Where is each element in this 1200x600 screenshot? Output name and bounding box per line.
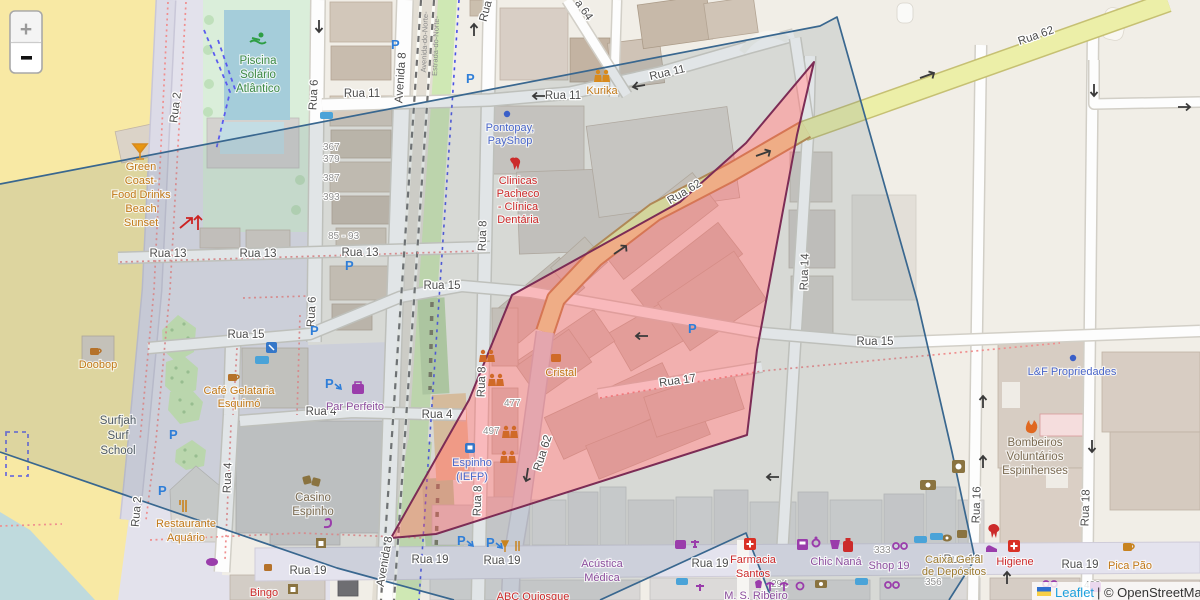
svg-text:Pica Pão: Pica Pão bbox=[1108, 560, 1152, 572]
svg-text:Espinho: Espinho bbox=[452, 457, 492, 469]
svg-text:P: P bbox=[688, 321, 697, 336]
svg-text:393: 393 bbox=[323, 192, 340, 203]
svg-text:Food Drinks: Food Drinks bbox=[111, 189, 171, 201]
svg-text:P: P bbox=[457, 533, 466, 548]
svg-text:| © OpenStreetMap: | © OpenStreetMap bbox=[1097, 585, 1200, 600]
svg-text:Rua 8: Rua 8 bbox=[476, 220, 489, 251]
svg-text:Rua 8: Rua 8 bbox=[475, 366, 488, 397]
svg-text:Rua 19: Rua 19 bbox=[691, 558, 728, 570]
svg-text:Rua 6: Rua 6 bbox=[307, 79, 321, 110]
svg-text:Rua 19: Rua 19 bbox=[1061, 559, 1098, 571]
svg-text:- Clínica: - Clínica bbox=[498, 201, 539, 213]
svg-text:Esquimó: Esquimó bbox=[218, 398, 261, 410]
svg-text:Rua 14: Rua 14 bbox=[798, 253, 811, 291]
svg-text:Médica: Médica bbox=[584, 572, 620, 584]
svg-text:Casino: Casino bbox=[295, 492, 331, 504]
svg-text:Surf: Surf bbox=[107, 430, 129, 442]
svg-text:497: 497 bbox=[483, 426, 500, 437]
svg-text:Rua 15: Rua 15 bbox=[856, 336, 893, 348]
svg-text:Kurika: Kurika bbox=[586, 85, 618, 97]
svg-text:P: P bbox=[466, 71, 475, 86]
svg-text:P: P bbox=[158, 483, 167, 498]
svg-text:Farmacia: Farmacia bbox=[730, 554, 777, 566]
svg-text:Rua 16: Rua 16 bbox=[970, 486, 983, 523]
svg-text:L&F Propriedades: L&F Propriedades bbox=[1028, 366, 1117, 378]
svg-text:Rua 13: Rua 13 bbox=[239, 248, 276, 260]
svg-text:Rua 15: Rua 15 bbox=[423, 280, 460, 292]
svg-text:Par Perfeito: Par Perfeito bbox=[326, 401, 384, 413]
svg-text:Rua 13: Rua 13 bbox=[149, 248, 186, 260]
svg-text:356: 356 bbox=[925, 577, 942, 588]
svg-text:Bombeiros: Bombeiros bbox=[1008, 437, 1063, 449]
svg-text:Rua 4: Rua 4 bbox=[221, 462, 234, 494]
svg-text:Rua 11: Rua 11 bbox=[545, 90, 581, 102]
svg-text:Rua 18: Rua 18 bbox=[1079, 489, 1092, 526]
svg-text:Rua 4: Rua 4 bbox=[422, 409, 453, 421]
svg-text:Santos: Santos bbox=[736, 568, 771, 580]
svg-text:(IEFP): (IEFP) bbox=[456, 471, 488, 483]
svg-text:333: 333 bbox=[874, 545, 891, 556]
svg-text:P: P bbox=[169, 427, 178, 442]
svg-text:P: P bbox=[325, 376, 334, 391]
svg-text:Sunset: Sunset bbox=[124, 217, 158, 229]
svg-text:Atlântico: Atlântico bbox=[236, 83, 280, 95]
svg-text:Espinho: Espinho bbox=[292, 506, 334, 518]
svg-text:Chic Naná: Chic Naná bbox=[810, 556, 862, 568]
svg-text:Aquário: Aquário bbox=[167, 532, 205, 544]
svg-text:ABC Quiosque: ABC Quiosque bbox=[497, 591, 570, 600]
svg-text:Dentária: Dentária bbox=[497, 214, 539, 226]
svg-text:387: 387 bbox=[323, 173, 340, 184]
svg-text:Pacheco: Pacheco bbox=[497, 188, 540, 200]
svg-text:P: P bbox=[310, 323, 319, 338]
svg-text:Higiene: Higiene bbox=[996, 556, 1033, 568]
svg-text:M. S. Ribeiro: M. S. Ribeiro bbox=[724, 590, 788, 600]
svg-text:+: + bbox=[20, 18, 32, 41]
svg-text:Restaurante: Restaurante bbox=[156, 518, 216, 530]
svg-text:Voluntários: Voluntários bbox=[1007, 451, 1064, 463]
svg-text:Espinhenses: Espinhenses bbox=[1002, 465, 1068, 477]
svg-text:85 - 93: 85 - 93 bbox=[328, 231, 360, 242]
svg-text:Leaflet: Leaflet bbox=[1055, 585, 1094, 600]
svg-text:P: P bbox=[345, 258, 354, 273]
svg-text:Rua 19: Rua 19 bbox=[483, 555, 520, 567]
svg-text:Acústica: Acústica bbox=[581, 558, 623, 570]
svg-text:Bingo: Bingo bbox=[250, 587, 278, 599]
svg-text:Piscina: Piscina bbox=[239, 55, 277, 67]
svg-text:Caixa Geral: Caixa Geral bbox=[925, 554, 983, 566]
svg-text:Rua 8: Rua 8 bbox=[471, 485, 484, 516]
svg-text:Clinicas: Clinicas bbox=[499, 175, 538, 187]
svg-text:Cristal: Cristal bbox=[545, 367, 576, 379]
svg-text:Rua 19: Rua 19 bbox=[289, 565, 326, 577]
svg-text:379: 379 bbox=[323, 154, 340, 165]
svg-text:Rua 11: Rua 11 bbox=[344, 88, 380, 100]
svg-text:Doobop: Doobop bbox=[79, 359, 118, 371]
svg-text:Café Gelataria: Café Gelataria bbox=[204, 385, 276, 397]
svg-text:Surfjah: Surfjah bbox=[100, 415, 136, 427]
svg-text:P: P bbox=[391, 37, 400, 52]
svg-text:School: School bbox=[100, 445, 135, 457]
svg-text:Coast-: Coast- bbox=[125, 175, 158, 187]
svg-text:Beach: Beach bbox=[125, 203, 156, 215]
svg-text:Green: Green bbox=[126, 161, 157, 173]
svg-text:Solário: Solário bbox=[240, 69, 276, 81]
svg-text:PayShop: PayShop bbox=[488, 135, 533, 147]
svg-text:Shop 19: Shop 19 bbox=[869, 560, 910, 572]
svg-text:Pontopay,: Pontopay, bbox=[486, 122, 535, 134]
svg-text:Rua 19: Rua 19 bbox=[411, 554, 448, 566]
svg-text:367: 367 bbox=[323, 142, 340, 153]
svg-text:Rua 15: Rua 15 bbox=[227, 329, 264, 341]
svg-text:P: P bbox=[486, 535, 495, 550]
svg-text:477: 477 bbox=[504, 398, 521, 409]
